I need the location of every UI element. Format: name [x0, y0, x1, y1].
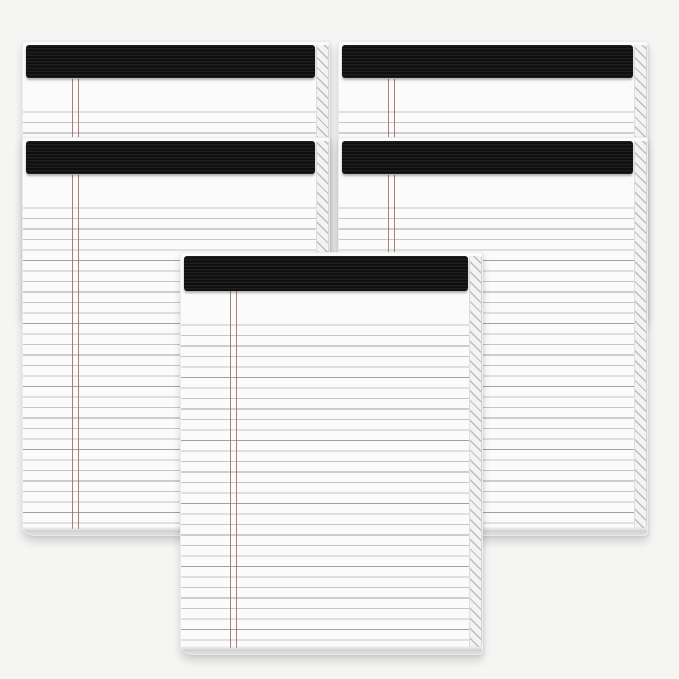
notepad-front-center [180, 252, 483, 655]
pad-binding [26, 141, 315, 174]
pad-stack-edge [634, 141, 647, 528]
pad-bottom-curl [181, 646, 482, 654]
pad-margin-line [72, 175, 79, 529]
pad-binding [342, 45, 633, 78]
pad-margin-line [230, 290, 237, 648]
pad-stack-edge [469, 256, 482, 647]
product-photo [0, 0, 679, 679]
pad-binding [184, 256, 468, 291]
pad-ruling [181, 315, 471, 646]
pad-binding [342, 141, 633, 174]
pad-binding [26, 45, 315, 78]
